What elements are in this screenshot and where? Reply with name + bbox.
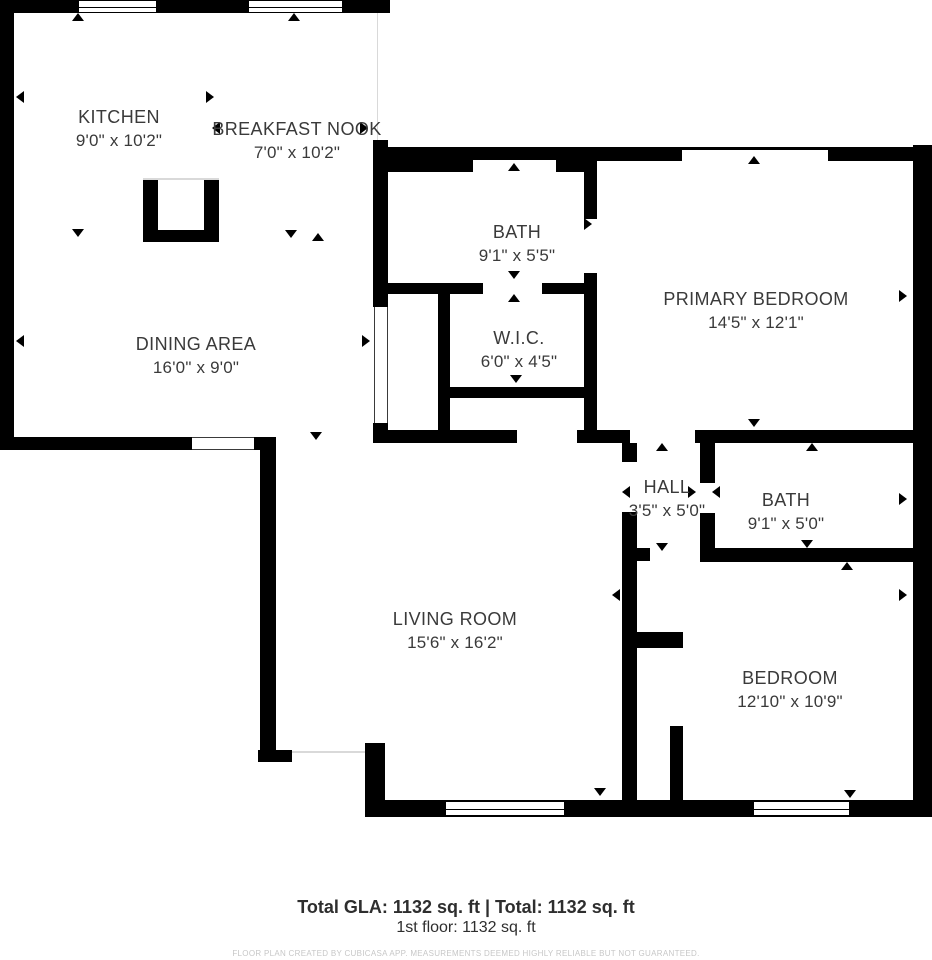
room-label-hall: HALL 3'5" x 5'0" xyxy=(629,477,706,521)
window-marker-icon xyxy=(594,788,606,796)
wall-segment xyxy=(622,443,637,462)
floor-plan: KITCHEN 9'0" x 10'2" BREAKFAST NOOK 7'0"… xyxy=(0,0,932,960)
wall-segment xyxy=(365,743,385,803)
window-icon xyxy=(445,801,565,816)
window-marker-icon xyxy=(264,589,272,601)
opening-marker-icon xyxy=(206,91,214,103)
door-marker-icon xyxy=(510,375,522,383)
floor-area-line: 1st floor: 1132 sq. ft xyxy=(0,919,932,937)
wall-opening-icon xyxy=(374,307,388,423)
opening-marker-icon xyxy=(285,230,297,238)
door-marker-icon xyxy=(801,540,813,548)
wall-segment xyxy=(584,147,597,219)
wall-segment xyxy=(670,726,683,800)
room-dimensions: 9'1" x 5'0" xyxy=(748,514,825,534)
wall-segment xyxy=(584,273,597,443)
door-marker-icon xyxy=(712,486,720,498)
window-marker-icon xyxy=(16,91,24,103)
room-dimensions: 15'6" x 16'2" xyxy=(393,633,517,653)
room-name: BATH xyxy=(479,222,556,243)
wall-segment xyxy=(695,430,913,443)
room-name: BEDROOM xyxy=(737,668,843,689)
room-dimensions: 12'10" x 10'9" xyxy=(737,692,843,712)
door-marker-icon xyxy=(841,562,853,570)
room-dimensions: 6'0" x 4'5" xyxy=(481,352,558,372)
room-label-bath-1: BATH 9'1" x 5'5" xyxy=(479,222,556,266)
opening-marker-icon xyxy=(748,156,760,164)
window-marker-icon xyxy=(72,13,84,21)
kitchen-island-wall xyxy=(143,230,219,242)
window-icon xyxy=(248,0,343,13)
room-label-kitchen: KITCHEN 9'0" x 10'2" xyxy=(76,107,162,151)
wall-segment xyxy=(542,283,597,294)
opening-marker-icon xyxy=(362,335,370,347)
room-dimensions: 9'0" x 10'2" xyxy=(76,131,162,151)
room-label-bedroom: BEDROOM 12'10" x 10'9" xyxy=(737,668,843,712)
window-marker-icon xyxy=(899,493,907,505)
window-marker-icon xyxy=(288,13,300,21)
door-marker-icon xyxy=(584,218,592,230)
door-marker-icon xyxy=(656,443,668,451)
wall-segment xyxy=(375,283,483,294)
room-name: W.I.C. xyxy=(481,328,558,349)
room-label-bath-2: BATH 9'1" x 5'0" xyxy=(748,490,825,534)
door-marker-icon xyxy=(748,419,760,427)
room-label-living-room: LIVING ROOM 15'6" x 16'2" xyxy=(393,609,517,653)
room-label-breakfast-nook: BREAKFAST NOOK 7'0" x 10'2" xyxy=(212,119,381,163)
wall-segment xyxy=(373,430,517,443)
opening-marker-icon xyxy=(310,432,322,440)
window-marker-icon xyxy=(899,589,907,601)
total-area-line: Total GLA: 1132 sq. ft | Total: 1132 sq.… xyxy=(0,897,932,918)
room-dimensions: 7'0" x 10'2" xyxy=(212,143,381,163)
window-marker-icon xyxy=(844,790,856,798)
room-label-dining-area: DINING AREA 16'0" x 9'0" xyxy=(136,334,256,378)
room-name: PRIMARY BEDROOM xyxy=(663,289,848,310)
wall-segment xyxy=(258,750,292,762)
wall-segment xyxy=(913,145,932,817)
opening-marker-icon xyxy=(626,589,634,601)
wall-opening-icon xyxy=(192,437,254,450)
window-marker-icon xyxy=(16,335,24,347)
wall-segment xyxy=(700,548,913,562)
room-name: HALL xyxy=(629,477,706,498)
wall-segment xyxy=(828,147,913,161)
entry-opening-line xyxy=(292,751,365,753)
door-marker-icon xyxy=(508,271,520,279)
room-name: BATH xyxy=(748,490,825,511)
window-icon xyxy=(78,0,157,13)
room-dimensions: 14'5" x 12'1" xyxy=(663,313,848,333)
wall-segment xyxy=(373,147,590,160)
wall-segment xyxy=(450,387,597,398)
disclaimer-text: FLOOR PLAN CREATED BY CUBICASA APP. MEAS… xyxy=(0,949,932,958)
room-label-wic: W.I.C. 6'0" x 4'5" xyxy=(481,328,558,372)
opening-marker-icon xyxy=(312,233,324,241)
window-marker-icon xyxy=(899,290,907,302)
room-dimensions: 16'0" x 9'0" xyxy=(136,358,256,378)
wall-segment xyxy=(385,160,473,172)
wall-segment xyxy=(577,430,630,443)
wall-segment xyxy=(438,283,450,443)
wall-segment xyxy=(0,0,14,450)
wall-segment xyxy=(0,437,192,450)
room-name: LIVING ROOM xyxy=(393,609,517,630)
wall-segment xyxy=(637,632,683,648)
door-marker-icon xyxy=(508,294,520,302)
room-name: KITCHEN xyxy=(76,107,162,128)
wall-segment xyxy=(590,147,682,161)
room-name: DINING AREA xyxy=(136,334,256,355)
door-marker-icon xyxy=(806,443,818,451)
opening-marker-icon xyxy=(72,229,84,237)
room-name: BREAKFAST NOOK xyxy=(212,119,381,140)
room-dimensions: 3'5" x 5'0" xyxy=(629,501,706,521)
kitchen-island-line xyxy=(143,178,219,180)
door-marker-icon xyxy=(656,543,668,551)
room-label-primary-bedroom: PRIMARY BEDROOM 14'5" x 12'1" xyxy=(663,289,848,333)
window-icon xyxy=(753,801,850,816)
door-marker-icon xyxy=(508,163,520,171)
wall-opening-line xyxy=(682,147,828,150)
room-dimensions: 9'1" x 5'5" xyxy=(479,246,556,266)
opening-marker-icon xyxy=(612,589,620,601)
